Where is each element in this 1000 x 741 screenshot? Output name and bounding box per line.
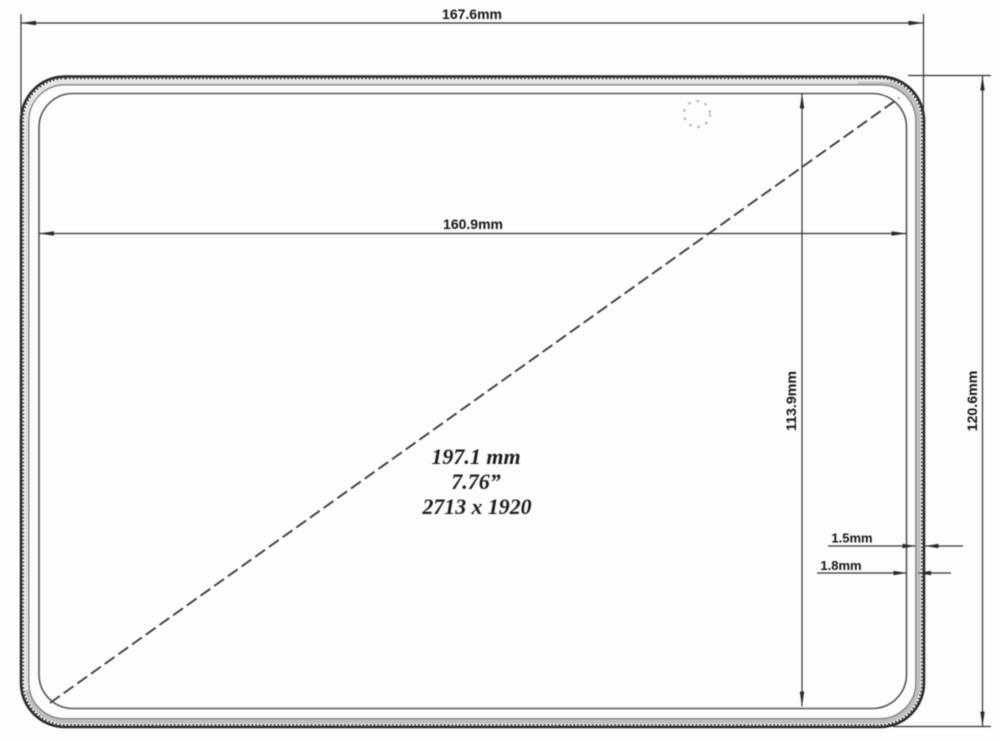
svg-text:167.6mm: 167.6mm [442,6,502,22]
svg-text:7.76”: 7.76” [451,469,501,494]
svg-text:1.5mm: 1.5mm [831,531,872,546]
svg-text:120.6mm: 120.6mm [965,371,981,432]
svg-text:197.1 mm: 197.1 mm [431,444,520,469]
svg-text:2713 x 1920: 2713 x 1920 [422,495,532,519]
svg-text:113.9mm: 113.9mm [784,371,800,431]
svg-text:1.8mm: 1.8mm [820,558,861,573]
svg-text:160.9mm: 160.9mm [443,216,503,232]
